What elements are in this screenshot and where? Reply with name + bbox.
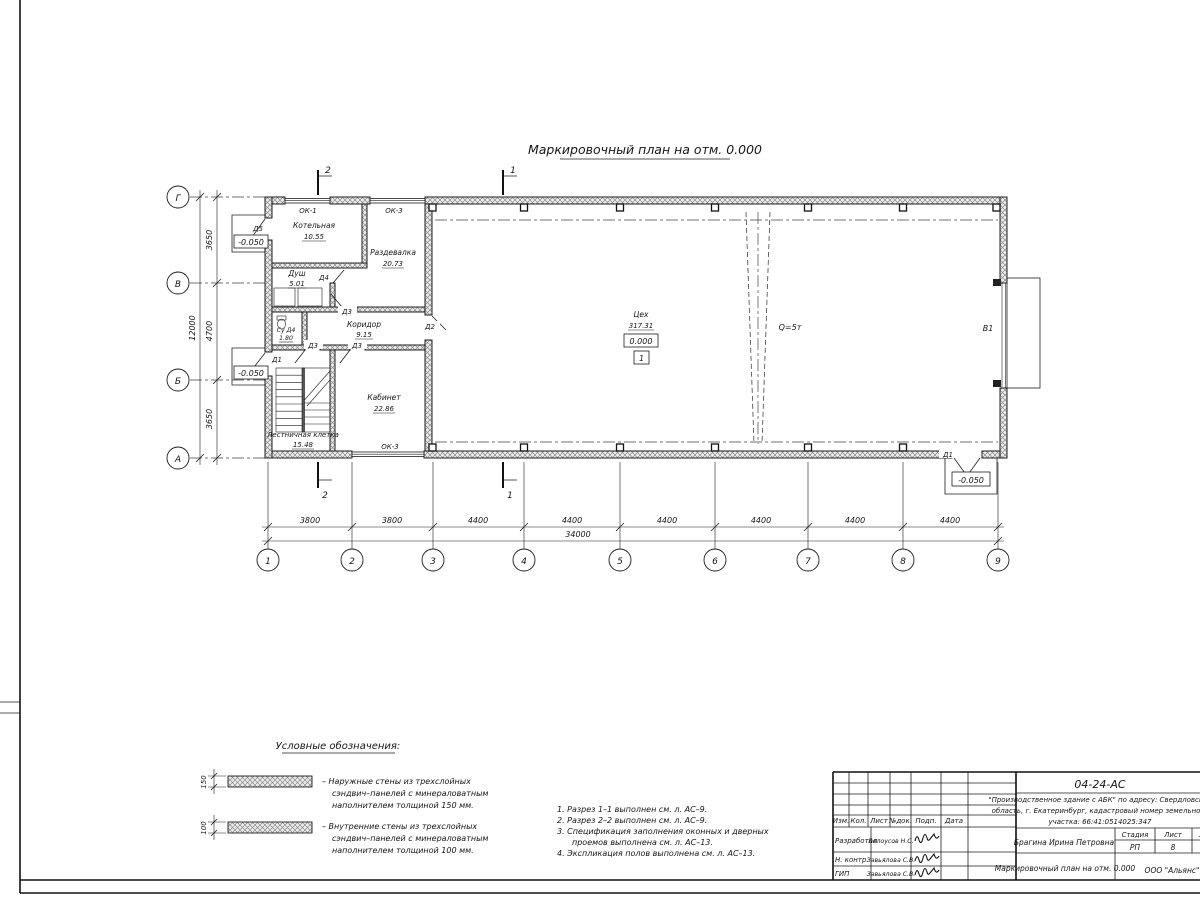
axis-lines [190,197,998,549]
title-block: Изм. Кол. Лист №док. Подп. Дата Разработ… [833,772,1200,880]
dim-total-text: 12000 [188,315,197,340]
axis-bubble: 2 [349,557,355,567]
section-label-2: 2 [322,491,328,501]
room-area: 317.31 [629,322,654,330]
dim-text: 3650 [205,230,214,250]
tb-name: Завьялова С.В. [867,871,915,878]
level-value: -0.050 [238,238,264,247]
door-label-d1: Д1 [271,356,282,364]
shower-cabin [274,288,295,306]
level-value: -0.050 [958,476,984,485]
legend-item-line: наполнителем толщиной 100 мм. [332,846,474,855]
window-label-ok1: ОК-1 [299,207,316,215]
room-name: Раздевалка [370,248,416,257]
floor-type-mark: 1 [639,354,644,363]
section-label-1: 1 [510,166,516,176]
legend: Условные обозначения: 150 – Наружные сте… [200,740,488,855]
shower-cabin [298,288,322,306]
dim-text: 4400 [562,516,582,525]
room-area: 22.86 [374,405,395,413]
door-label-d4: Д4 [318,274,329,282]
toilet-icon [277,316,286,320]
room-name: Лестничная клетка [266,431,339,439]
floor-plan-canvas: Маркировочный план на отм. 0.000 [0,0,1200,900]
notes: 1. Разрез 1–1 выполнен см. л. АС–9. 2. Р… [557,805,769,858]
tb-col-header: №док. [888,817,912,825]
room-name: Су Д4 [277,327,296,334]
axis-bubble: В [175,280,181,290]
plan-title: Маркировочный план на отм. 0.000 [528,142,762,157]
dim-text: 4400 [845,516,865,525]
crane-capacity-label: Q=5т [779,323,802,332]
dim-text: 3800 [300,516,320,525]
tb-project-line: участка: 66:41:0514025:347 [1047,818,1152,826]
room-area: 5.01 [289,280,305,288]
tb-col-header: Кол. [851,817,867,825]
columns [429,204,1000,451]
tb-company: ООО "Альянс" [1145,866,1200,875]
dim-text: 3650 [205,409,214,429]
section-label-2: 2 [325,166,331,176]
dim-text: 3800 [382,516,402,525]
tb-stage: РП [1130,843,1141,852]
legend-item-line: сэндвич–панелей с минераловатным [332,834,488,843]
note-line: 1. Разрез 1–1 выполнен см. л. АС–9. [557,805,707,814]
gate-label-v1: В1 [983,324,994,333]
note-line: 2. Разрез 2–2 выполнен см. л. АС–9. [557,816,707,825]
door-label-d3: Д3 [307,342,318,350]
dim-text: 4400 [940,516,960,525]
dim-text: 4400 [751,516,771,525]
tb-project-line: "Производственное здание с АБК" по адрес… [988,796,1200,804]
room-name: Котельная [293,221,336,230]
axis-bubble: 3 [430,557,436,567]
legend-item-line: наполнителем толщиной 150 мм. [332,801,474,810]
drawing-sheet: Маркировочный план на отм. 0.000 [0,0,1200,900]
axis-bubble: 9 [995,557,1001,567]
dim-text: 4400 [468,516,488,525]
sheet-frame [0,0,1200,893]
tb-role: Н. контр. [835,856,869,864]
door-label-d3: Д3 [351,342,362,350]
tb-doc-title: Маркировочный план на отм. 0.000 [995,864,1136,873]
legend-thickness: 150 [200,775,208,789]
axis-bubble: 1 [265,557,271,567]
note-line: проемов выполнена см. л. АС–13. [572,838,713,847]
level-value: 0.000 [630,337,653,346]
room-area: 9.15 [356,331,372,339]
room-labels: Котельная 10.55 Раздевалка 20.73 Душ 5.0… [266,221,654,449]
window-label-ok3: ОК-3 [381,443,398,451]
legend-item-line: – Внутренние стены из трехслойных [322,822,477,831]
room-area: 10.55 [304,233,325,241]
legend-thickness: 100 [200,821,208,835]
axis-bubble: 6 [712,557,718,567]
tb-name: Белоусов Н.С. [868,838,913,845]
tb-author: Брагина Ирина Петровна [1014,838,1115,847]
dim-total-text: 34000 [565,530,590,539]
section-label-1: 1 [507,491,513,501]
level-value: -0.050 [238,369,264,378]
axis-bubble: Б [175,377,181,387]
room-name: Кабинет [367,393,401,402]
room-area: 20.73 [383,260,403,268]
tb-col-header: Лист [869,817,889,825]
signature [915,834,939,843]
gate-v1 [993,278,1040,388]
level-marks: -0.050 -0.050 -0.050 0.000 1 [234,235,990,486]
tb-col-header: Дата [944,817,963,825]
dimensions-left: 3650 4700 3650 12000 [188,190,221,465]
door-label-d2: Д2 [424,323,435,331]
room-name: Коридор [347,320,381,329]
room-area: 15.48 [293,441,314,449]
door-label-d3: Д3 [341,308,352,316]
tb-sheet: 8 [1171,843,1176,852]
axis-bubble: 4 [521,557,527,567]
room-area: 1.80 [279,335,293,342]
legend-title: Условные обозначения: [276,740,401,752]
dimensions-bottom: 3800 3800 4400 4400 4400 4400 4400 4400 … [262,516,1004,545]
tb-role: ГИП [835,870,850,878]
stairs [276,368,330,432]
axis-bubble: 5 [617,557,623,567]
dim-text: 4400 [657,516,677,525]
axis-bubbles: 1 2 3 4 5 6 7 8 9 Г В Б А [167,186,1009,571]
tb-col-header: Изм. [833,817,849,825]
window-label-ok3: ОК-3 [385,207,402,215]
axis-bubble: 8 [900,557,906,567]
legend-item-line: сэндвич–панелей с минераловатным [332,789,488,798]
tb-name: Завьялова С.В. [867,857,915,864]
tb-sheet-label: Лист [1163,831,1183,839]
tb-doc-number: 04-24-АС [1074,778,1125,791]
tb-stage-label: Стадия [1122,831,1149,839]
door-label-d5: Д5 [252,225,263,233]
signature [915,868,939,877]
room-name: Душ [287,269,305,278]
axis-bubble: 7 [805,557,811,567]
note-line: 4. Экспликация полов выполнена см. л. АС… [557,849,755,858]
tb-project-line: область, г. Екатеринбург, кадастровый но… [992,807,1200,815]
tb-col-header: Подп. [915,817,936,825]
room-name: Цех [634,310,649,319]
door-label-d1: Д1 [942,451,953,459]
note-line: 3. Спецификация заполнения оконных и две… [557,827,769,836]
dim-text: 4700 [205,321,214,341]
crane-runway [435,212,998,444]
legend-item-line: – Наружные стены из трехслойных [322,777,471,786]
signature [915,854,939,863]
axis-bubble: А [174,455,181,465]
